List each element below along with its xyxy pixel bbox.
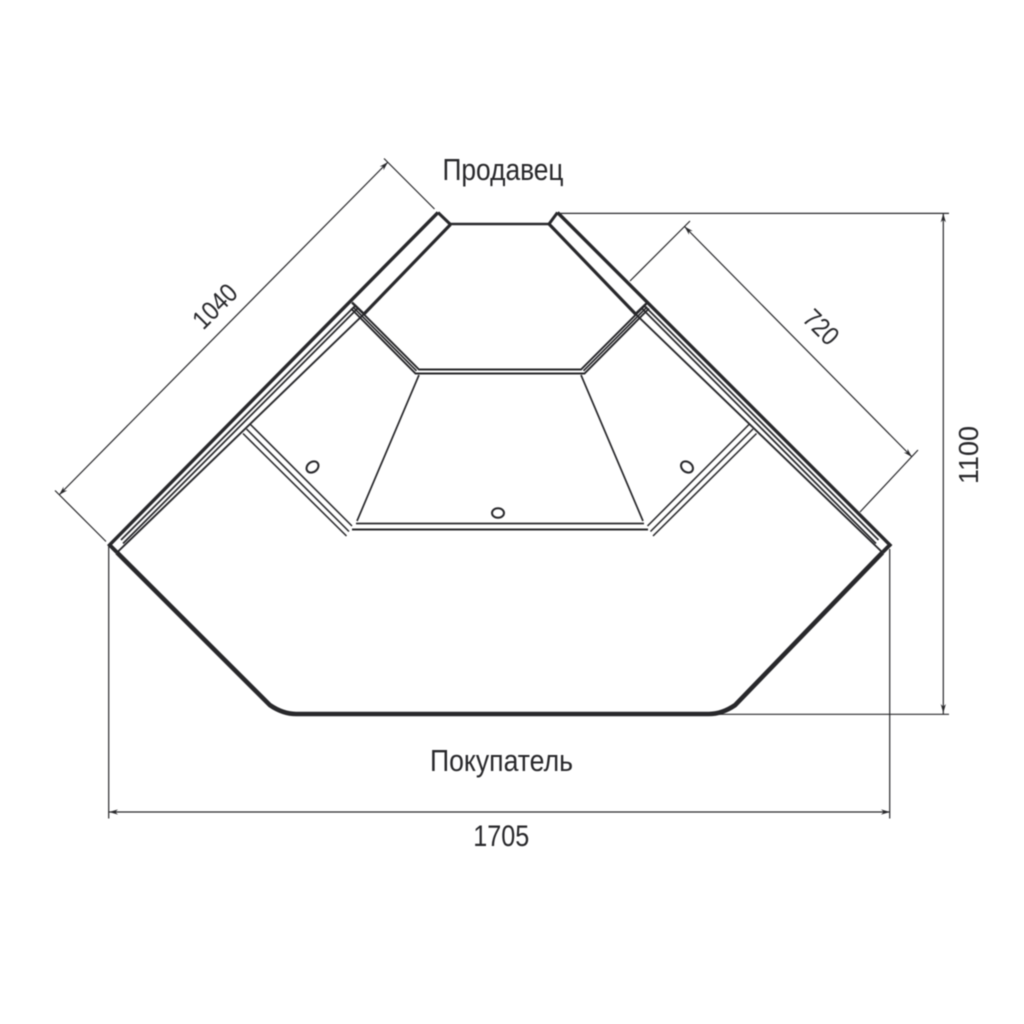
svg-text:1100: 1100 bbox=[953, 426, 984, 484]
svg-text:Продавец: Продавец bbox=[443, 153, 564, 187]
svg-text:720: 720 bbox=[797, 303, 845, 351]
svg-text:Покупатель: Покупатель bbox=[430, 744, 573, 778]
svg-text:1705: 1705 bbox=[473, 821, 529, 853]
svg-text:1040: 1040 bbox=[186, 278, 243, 335]
